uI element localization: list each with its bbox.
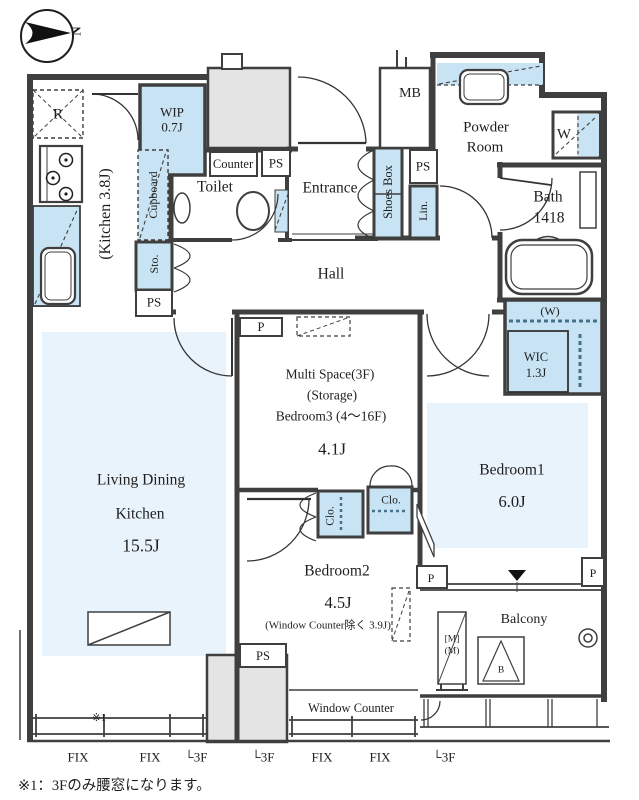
footnote: ※1：3Fのみ腰窓になります。 [18,774,211,795]
closet-right-label: Clo. [381,495,401,507]
powder-door-arc [440,186,492,238]
kitchen-sink-icon [41,248,75,304]
drain-icon [579,629,597,647]
toilet-label: Toilet [197,179,233,195]
stove-icon [40,146,82,202]
toilet-icon [174,192,269,230]
ps-bottom-label: PS [256,650,270,663]
compass-icon [21,10,73,62]
meter-box-room [380,68,430,148]
ldk-label-1: Living Dining [97,472,185,488]
washer-label: W [557,128,571,143]
table-icon [88,612,170,645]
washbasin-icon [460,70,508,104]
ps-hall-label: PS [147,296,161,309]
bedroom1-door-arc [427,314,489,376]
meter-label-1: [M] [445,635,460,645]
toilet-tank [275,190,288,232]
window-label-3f-2: └3F [252,751,275,764]
window-label-fix-4: FIX [370,751,391,764]
bedroom2-area-label: 4.5J [324,595,351,612]
bedroom2-note-label: (Window Counter除く 3.9J) [265,621,391,632]
balcony-label: Balcony [501,613,548,627]
storage-label: Sto. [148,254,160,273]
bathtub-icon [506,237,592,295]
bedroom1-label: Bedroom1 [479,462,544,478]
p-balcony-right-label: P [590,567,597,579]
p-balcony-left-label: P [428,572,435,584]
floor-plan: N R WIP 0.7J (Kitchen 3.8J) Cupboard Cou… [0,0,639,800]
shoes-box-label: Shoes Box [382,165,395,219]
meter-label-2: (M) [445,647,460,657]
multi-space-label-2: (Storage) [307,388,357,402]
multi-space-label-1: Multi Space(3F) [286,367,375,381]
ps-entrance-label: PS [416,160,430,173]
window-label-fix-1: FIX [68,751,89,764]
powder-room-label-1: Powder [463,121,509,136]
window-note-marker: ※1 [92,714,106,725]
ldk-area-label: 15.5J [122,537,159,555]
ps-top-label: PS [269,157,283,170]
shoes-box-fold-doors [358,150,374,239]
counter-label: Counter [213,158,253,171]
multi-space-label-3: Bedroom3 (4〜16F) [276,409,387,423]
closet-left-label: Clo. [325,506,337,526]
wip-area-label: 0.7J [161,121,182,134]
cupboard-label: Cupboard [147,171,159,218]
entrance-alcove [208,68,290,148]
storage-fold-doors [174,244,190,292]
washer-pan [577,114,599,156]
closet-right-doors [370,466,412,487]
bedroom1-area-label: 6.0J [498,494,525,511]
window-counter-label: Window Counter [308,702,394,715]
wip-label: WIP [160,106,184,119]
kitchen-door-arc [92,94,138,140]
linen-label: Lin. [417,201,429,221]
compass-north-label: N [70,26,83,35]
wic-w-label: (W) [540,305,559,317]
window-label-fix-2: FIX [140,751,161,764]
ldk-label-2: Kitchen [115,506,164,522]
pillar-block [207,655,287,742]
entry-direction-marker [508,570,526,581]
mb-label: MB [399,87,421,101]
wic-area-label: 1.3J [526,367,547,380]
hall-label: Hall [318,266,345,282]
hand-basin-icon [174,193,190,223]
bath-counter [580,172,596,228]
bath-label: Bath [533,189,562,205]
multi-space-area-label: 4.1J [318,441,346,458]
kitchen-label: (Kitchen 3.8J) [98,168,114,260]
entrance-door-arc [298,77,366,143]
closet-left-fold-doors [300,493,316,541]
ldk-floor [42,332,226,656]
window-label-3f-1: └3F [185,751,208,764]
p-multi-label: P [258,321,265,334]
b-panel-label: B [498,666,504,676]
entrance-label: Entrance [302,180,357,196]
bedroom2-label: Bedroom2 [304,563,369,579]
refrigerator-label: R [53,108,63,123]
bath-size-label: 1418 [534,210,565,226]
alcove-notch [222,54,242,69]
powder-room-label-2: Room [467,141,504,156]
b-panel-icon [478,637,524,684]
window-label-fix-3: FIX [312,751,333,764]
wic-label: WIC [524,351,548,364]
window-label-3f-3: └3F [433,751,456,764]
